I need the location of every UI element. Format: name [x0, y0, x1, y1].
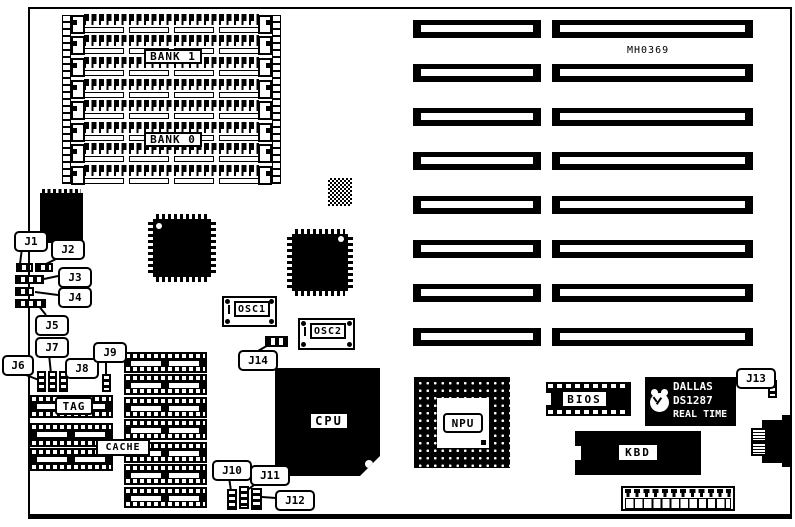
motherboard-diagram: BANK 1 BANK 0 MH0369 OSC1 OSC2 CPU	[0, 0, 795, 527]
jumper-callout-j10: J10	[212, 460, 252, 481]
jumper-j2	[35, 263, 53, 272]
jumper-j6	[37, 371, 46, 392]
bank1-label: BANK 1	[144, 49, 202, 64]
osc1-label: OSC1	[234, 301, 270, 317]
jumper-callout-j7: J7	[35, 337, 69, 358]
jumper-callout-j6: J6	[2, 355, 34, 376]
jumper-callout-j1: J1	[14, 231, 48, 252]
jumper-j10	[227, 489, 237, 510]
tag-label: TAG	[55, 397, 93, 415]
jumper-j5	[15, 299, 46, 308]
jumper-j3	[15, 275, 44, 284]
jumper-j12	[251, 488, 262, 510]
jumper-callout-j14: J14	[238, 350, 278, 371]
jumper-j14	[265, 336, 288, 347]
jumper-callout-j11: J11	[250, 465, 290, 486]
jumper-callout-j13: J13	[736, 368, 776, 389]
jumper-j7	[48, 371, 57, 392]
bank0-label: BANK 0	[144, 132, 202, 147]
kbd-label: KBD	[617, 443, 659, 462]
jumper-j11	[239, 486, 249, 509]
jumper-j9	[102, 374, 111, 392]
cache-label: CACHE	[96, 439, 150, 456]
jumper-callout-j2: J2	[51, 239, 85, 260]
jumper-j1	[16, 263, 33, 272]
jumper-callout-j4: J4	[58, 287, 92, 308]
osc2-label: OSC2	[310, 323, 346, 339]
jumper-callout-j12: J12	[275, 490, 315, 511]
jumper-callout-j9: J9	[93, 342, 127, 363]
jumper-callout-j5: J5	[35, 315, 69, 336]
jumper-callout-j3: J3	[58, 267, 92, 288]
jumper-j4	[15, 287, 34, 296]
npu-label: NPU	[443, 413, 483, 433]
